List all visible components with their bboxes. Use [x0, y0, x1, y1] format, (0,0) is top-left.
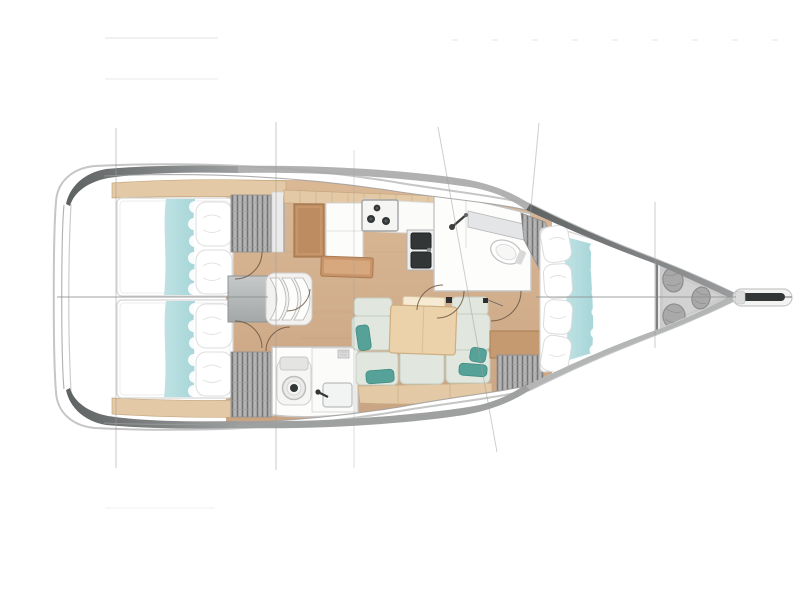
engine-box: [228, 276, 268, 322]
locker-face: [272, 192, 284, 252]
bow-fitting: [735, 291, 745, 304]
mast-post: [446, 297, 452, 303]
anchor-roller: [742, 293, 785, 301]
starboard-cabinet: [490, 331, 542, 358]
aft-stbd-pillow-1: [196, 304, 232, 348]
companionway: [228, 273, 312, 325]
aft-cabin-starboard: [117, 300, 233, 398]
wardrobe-aft-starboard: [231, 352, 271, 417]
aft-port-bed-runner: [164, 199, 195, 295]
sink-faucet: [427, 248, 431, 252]
aft-cabin-port: [117, 198, 233, 296]
nav-chart-table: [294, 204, 324, 257]
bowsprit: [733, 289, 792, 306]
aft-stbd-pillow-2: [196, 352, 232, 396]
aft-head: [272, 347, 358, 417]
aft-stbd-bed-runner: [164, 301, 195, 397]
interior: [112, 180, 736, 423]
toilet: [277, 357, 311, 405]
stove: [362, 200, 398, 231]
galley-bench: [321, 256, 374, 278]
aft-port-pillow-1: [196, 202, 232, 246]
vanity-sink: [312, 348, 356, 412]
door-post: [483, 298, 488, 303]
wardrobe-aft-port: [231, 195, 271, 252]
yacht-floor-plan-page: [0, 0, 800, 600]
aft-port-pillow-2: [196, 250, 232, 294]
yacht-floor-plan: [0, 0, 800, 600]
galley-sink: [407, 230, 434, 270]
vent-hatch: [338, 350, 349, 358]
